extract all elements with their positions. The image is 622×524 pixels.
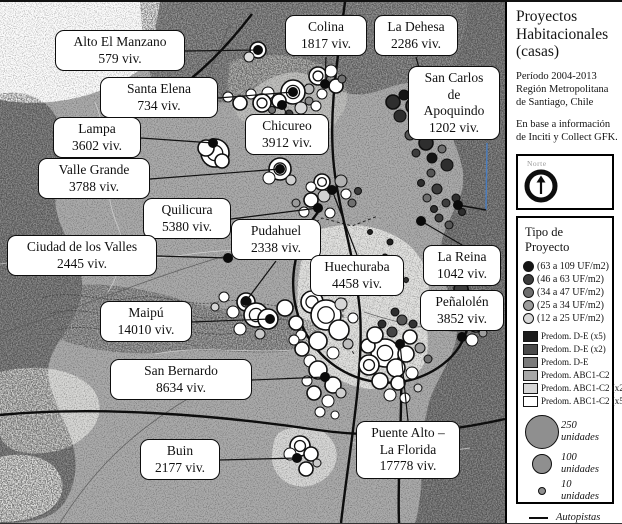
project-bubble (367, 327, 383, 343)
size-class-label: 10 unidades (561, 479, 609, 503)
callout-leader-line (486, 143, 487, 210)
callout-value: 3912 viv. (248, 135, 326, 152)
callout-anchor-dot (253, 45, 263, 55)
project-bubble (341, 189, 351, 199)
callout-value: 3852 viv. (423, 311, 501, 328)
predom-swatch-icon (523, 383, 538, 394)
map-area: Alto El Manzano579 viv.Colina1817 viv.La… (0, 2, 507, 524)
size-circle-icon (525, 415, 559, 449)
project-bubble (292, 199, 300, 207)
map-callout-chicureo: Chicureo3912 viv. (245, 114, 329, 155)
project-bubble (466, 334, 478, 346)
project-bubble (431, 206, 438, 213)
size-class-label: 100 unidades (561, 452, 609, 476)
predom-swatch-icon (523, 370, 538, 381)
callout-title: Maipú (103, 305, 189, 322)
project-bubble (219, 292, 229, 302)
project-bubble (435, 214, 443, 222)
map-callout-santa-elena: Santa Elena734 viv. (100, 77, 218, 118)
project-bubble (394, 110, 406, 122)
price-class-row: (34 a 47 UF/m2) (523, 287, 609, 298)
predom-class-label: Predom. D-E (x5) (541, 331, 606, 341)
callout-title: Santa Elena (103, 81, 215, 98)
project-bubble (234, 323, 246, 335)
project-bubble (355, 188, 362, 195)
price-class-row: (63 a 109 UF/m2) (523, 261, 609, 272)
callout-value: 17778 viv. (359, 458, 457, 475)
callout-value: 2445 viv. (10, 256, 154, 273)
project-bubble (317, 89, 327, 99)
price-class-label: (46 a 63 UF/m2) (537, 274, 604, 285)
project-bubble (289, 335, 299, 345)
predom-class-row: Predom. ABC1-C2 (x5) (523, 396, 609, 407)
callout-value: 14010 viv. (103, 322, 189, 339)
price-class-legend: (63 a 109 UF/m2)(46 a 63 UF/m2)(34 a 47 … (523, 261, 609, 324)
project-bubble (307, 386, 321, 400)
project-bubble (438, 145, 446, 153)
callout-title: San Carlos (411, 70, 497, 87)
callout-title: La Florida (359, 442, 457, 459)
size-circle-cell (523, 454, 561, 474)
callout-title: Pudahuel (234, 223, 318, 240)
size-circle-icon (538, 487, 546, 495)
project-bubble (338, 75, 346, 83)
price-class-label: (34 a 47 UF/m2) (537, 287, 604, 298)
project-bubble (359, 355, 379, 375)
callout-title: San Bernardo (113, 363, 249, 380)
callout-title: Lampa (56, 121, 138, 138)
map-callout-buin: Buin2177 viv. (140, 439, 220, 480)
callout-title: Alto El Manzano (58, 34, 182, 51)
project-bubble (244, 52, 254, 62)
callout-title: La Reina (426, 249, 498, 266)
project-bubble (348, 199, 356, 207)
project-bubble (335, 175, 347, 187)
map-callout-huechuraba: Huechuraba4458 viv. (310, 255, 404, 296)
map-callout-alto-el-manzano: Alto El Manzano579 viv. (55, 30, 185, 71)
callout-anchor-dot (395, 339, 405, 349)
price-class-dot-icon (523, 261, 534, 272)
project-bubble (313, 459, 321, 467)
project-bubble (299, 462, 313, 476)
predom-swatch-icon (523, 396, 538, 407)
predom-swatch-icon (523, 344, 538, 355)
callout-anchor-dot (320, 79, 330, 89)
map-callout-san-bernardo: San Bernardo8634 viv. (110, 359, 252, 400)
callout-title: Ciudad de los Valles (10, 239, 154, 256)
project-bubble (215, 154, 229, 168)
map-figure: Alto El Manzano579 viv.Colina1817 viv.La… (0, 0, 622, 524)
map-callout-san-carlos-de-apoquindo: San CarlosdeApoquindo1202 viv. (408, 66, 500, 140)
callout-anchor-dot (292, 453, 302, 463)
price-class-row: (12 a 25 UF/m2) (523, 313, 609, 324)
callout-value: 579 viv. (58, 51, 182, 68)
map-callout-maipu: Maipú14010 viv. (100, 301, 192, 342)
project-bubble (311, 101, 321, 111)
callout-value: 8634 viv. (113, 380, 249, 397)
map-callout-la-reina: La Reina1042 viv. (423, 245, 501, 286)
callout-title: Huechuraba (313, 259, 401, 276)
project-bubble (269, 107, 276, 114)
callout-anchor-dot (265, 314, 275, 324)
callout-title: Puente Alto – (359, 425, 457, 442)
callout-anchor-dot (327, 185, 337, 195)
size-circle-cell (523, 415, 561, 449)
price-class-row: (46 a 63 UF/m2) (523, 274, 609, 285)
callout-value: 1202 viv. (411, 120, 497, 137)
callout-anchor-dot (277, 100, 287, 110)
project-bubble (227, 306, 239, 318)
map-callout-pudahuel: Pudahuel2338 viv. (231, 219, 321, 260)
predom-swatch-icon (523, 357, 538, 368)
project-bubble (424, 355, 432, 363)
price-class-dot-icon (523, 287, 534, 298)
price-class-label: (63 a 109 UF/m2) (537, 261, 609, 272)
price-class-dot-icon (523, 300, 534, 311)
callout-value: 3788 viv. (41, 179, 147, 196)
project-bubble (441, 159, 453, 171)
callout-anchor-dot (313, 203, 323, 213)
project-bubble (233, 96, 247, 110)
predom-swatch-icon (523, 331, 538, 342)
project-bubble (327, 347, 339, 359)
price-class-row: (25 a 34 UF/m2) (523, 300, 609, 311)
size-class-row: 10 unidades (523, 479, 609, 503)
callout-anchor-dot (457, 332, 467, 342)
callout-value: 2338 viv. (234, 240, 318, 257)
project-bubble (309, 332, 327, 350)
callout-anchor-dot (320, 372, 330, 382)
size-class-label: 250 unidades (561, 420, 609, 444)
map-callout-quilicura: Quilicura5380 viv. (143, 198, 231, 239)
callout-value: 1042 viv. (426, 266, 498, 283)
predom-class-row: Predom. D-E (x5) (523, 331, 609, 342)
callout-value: 2286 viv. (377, 36, 455, 53)
size-class-legend: 250 unidades100 unidades10 unidades (523, 415, 609, 503)
callout-title: Valle Grande (41, 162, 147, 179)
project-bubble (406, 367, 418, 379)
size-circle-cell (523, 487, 561, 495)
project-bubble (322, 395, 334, 407)
map-callout-penalolen: Peñalolén3852 viv. (420, 290, 504, 331)
predom-class-row: Predom. ABC1-C2 (x2) (523, 383, 609, 394)
project-bubble (391, 308, 399, 316)
project-bubble (415, 343, 425, 353)
map-callout-lampa: Lampa3602 viv. (53, 117, 141, 158)
project-bubble (384, 389, 396, 401)
project-bubble (336, 388, 346, 398)
project-bubble (414, 384, 422, 392)
project-bubble (404, 278, 409, 283)
road-class-row: Autopistas (523, 512, 609, 524)
project-bubble (391, 376, 405, 390)
legend-sidebar: Proyectos Habitacionales (casas) Período… (509, 2, 622, 524)
price-class-dot-icon (523, 274, 534, 285)
predom-class-row: Predom. D-E (x2) (523, 344, 609, 355)
callout-anchor-dot (208, 138, 218, 148)
project-bubble (412, 149, 420, 157)
project-bubble (418, 180, 425, 187)
project-bubble (335, 298, 347, 310)
project-bubble (289, 316, 303, 330)
project-bubble (325, 208, 335, 218)
callout-title: de (411, 87, 497, 104)
map-callout-colina: Colina1817 viv. (285, 15, 367, 56)
predom-class-row: Predom. D-E (523, 357, 609, 368)
project-bubble (409, 320, 417, 328)
size-circle-icon (532, 454, 552, 474)
period-text: Período 2004-2013 Región Metropolitana d… (516, 70, 619, 109)
predom-class-label: Predom. D-E (541, 357, 589, 367)
map-callout-la-dehesa: La Dehesa2286 viv. (374, 15, 458, 56)
size-class-row: 100 unidades (523, 452, 609, 476)
callout-value: 5380 viv. (146, 219, 228, 236)
project-bubble (445, 221, 453, 229)
project-bubble (211, 303, 219, 311)
size-class-row: 250 unidades (523, 415, 609, 449)
project-bubble (387, 239, 393, 245)
callout-title: La Dehesa (377, 19, 455, 36)
project-bubble (331, 411, 339, 419)
project-bubble (246, 89, 256, 99)
project-bubble (432, 184, 442, 194)
project-bubble (386, 95, 400, 109)
project-bubble (423, 194, 431, 202)
predom-class-label: Predom. ABC1-C2 (541, 370, 610, 380)
project-bubble (286, 175, 296, 185)
predom-class-legend: Predom. D-E (x5)Predom. D-E (x2)Predom. … (523, 331, 609, 407)
project-bubble (325, 65, 337, 77)
project-bubble (277, 300, 293, 316)
map-callout-puente-alto-la-florida: Puente Alto –La Florida17778 viv. (356, 421, 460, 479)
callout-value: 4458 viv. (313, 276, 401, 293)
price-class-label: (12 a 25 UF/m2) (537, 313, 604, 324)
project-bubble (343, 339, 353, 349)
legend-box: Tipo de Proyecto (63 a 109 UF/m2)(46 a 6… (516, 216, 614, 504)
project-bubble (306, 182, 316, 192)
predom-class-label: Predom. ABC1-C2 (x5) (541, 396, 622, 406)
callout-anchor-dot (416, 216, 426, 226)
callout-anchor-dot (275, 164, 285, 174)
callout-anchor-dot (288, 87, 298, 97)
callout-value: 1817 viv. (288, 36, 364, 53)
callout-title: Buin (143, 443, 217, 460)
callout-value: 734 viv. (103, 98, 215, 115)
project-bubble (403, 330, 417, 344)
map-callout-ciudad-de-los-valles: Ciudad de los Valles2445 viv. (7, 235, 157, 276)
north-indicator: Norte (516, 154, 614, 210)
callout-value: 3602 viv. (56, 138, 138, 155)
predom-class-label: Predom. ABC1-C2 (x2) (541, 383, 622, 393)
highway-line-icon (529, 517, 548, 519)
map-title: Proyectos Habitacionales (casas) (516, 8, 619, 61)
predom-class-label: Predom. D-E (x2) (541, 344, 606, 354)
project-bubble (368, 230, 373, 235)
north-label: Norte (527, 159, 547, 168)
callout-title: Quilicura (146, 202, 228, 219)
predom-class-row: Predom. ABC1-C2 (523, 370, 609, 381)
source-text: En base a información de Inciti y Collec… (516, 118, 619, 144)
project-bubble (427, 153, 437, 163)
project-bubble (255, 329, 265, 339)
map-callout-valle-grande: Valle Grande3788 viv. (38, 158, 150, 199)
callout-title: Apoquindo (411, 103, 497, 120)
price-class-label: (25 a 34 UF/m2) (537, 300, 604, 311)
project-bubble (348, 313, 358, 323)
callout-title: Peñalolén (423, 294, 501, 311)
price-class-dot-icon (523, 313, 534, 324)
project-bubble (427, 169, 435, 177)
callout-value: 2177 viv. (143, 460, 217, 477)
road-class-label: Autopistas (556, 512, 600, 524)
callout-anchor-dot (241, 296, 251, 306)
project-bubble (329, 320, 349, 340)
callout-anchor-dot (453, 200, 463, 210)
road-class-legend: AutopistasVialidad Secundaria (523, 512, 609, 524)
project-bubble (442, 199, 450, 207)
project-bubble (263, 172, 275, 184)
project-bubble (315, 407, 325, 417)
project-bubble (372, 373, 388, 389)
project-bubble (378, 320, 386, 328)
legend-title: Tipo de Proyecto (525, 225, 609, 255)
project-bubble (295, 102, 307, 114)
project-bubble (299, 207, 309, 217)
callout-title: Colina (288, 19, 364, 36)
project-bubble (397, 315, 407, 325)
callout-title: Chicureo (248, 118, 326, 135)
project-bubble (387, 327, 397, 337)
north-arrow-icon (523, 168, 559, 204)
